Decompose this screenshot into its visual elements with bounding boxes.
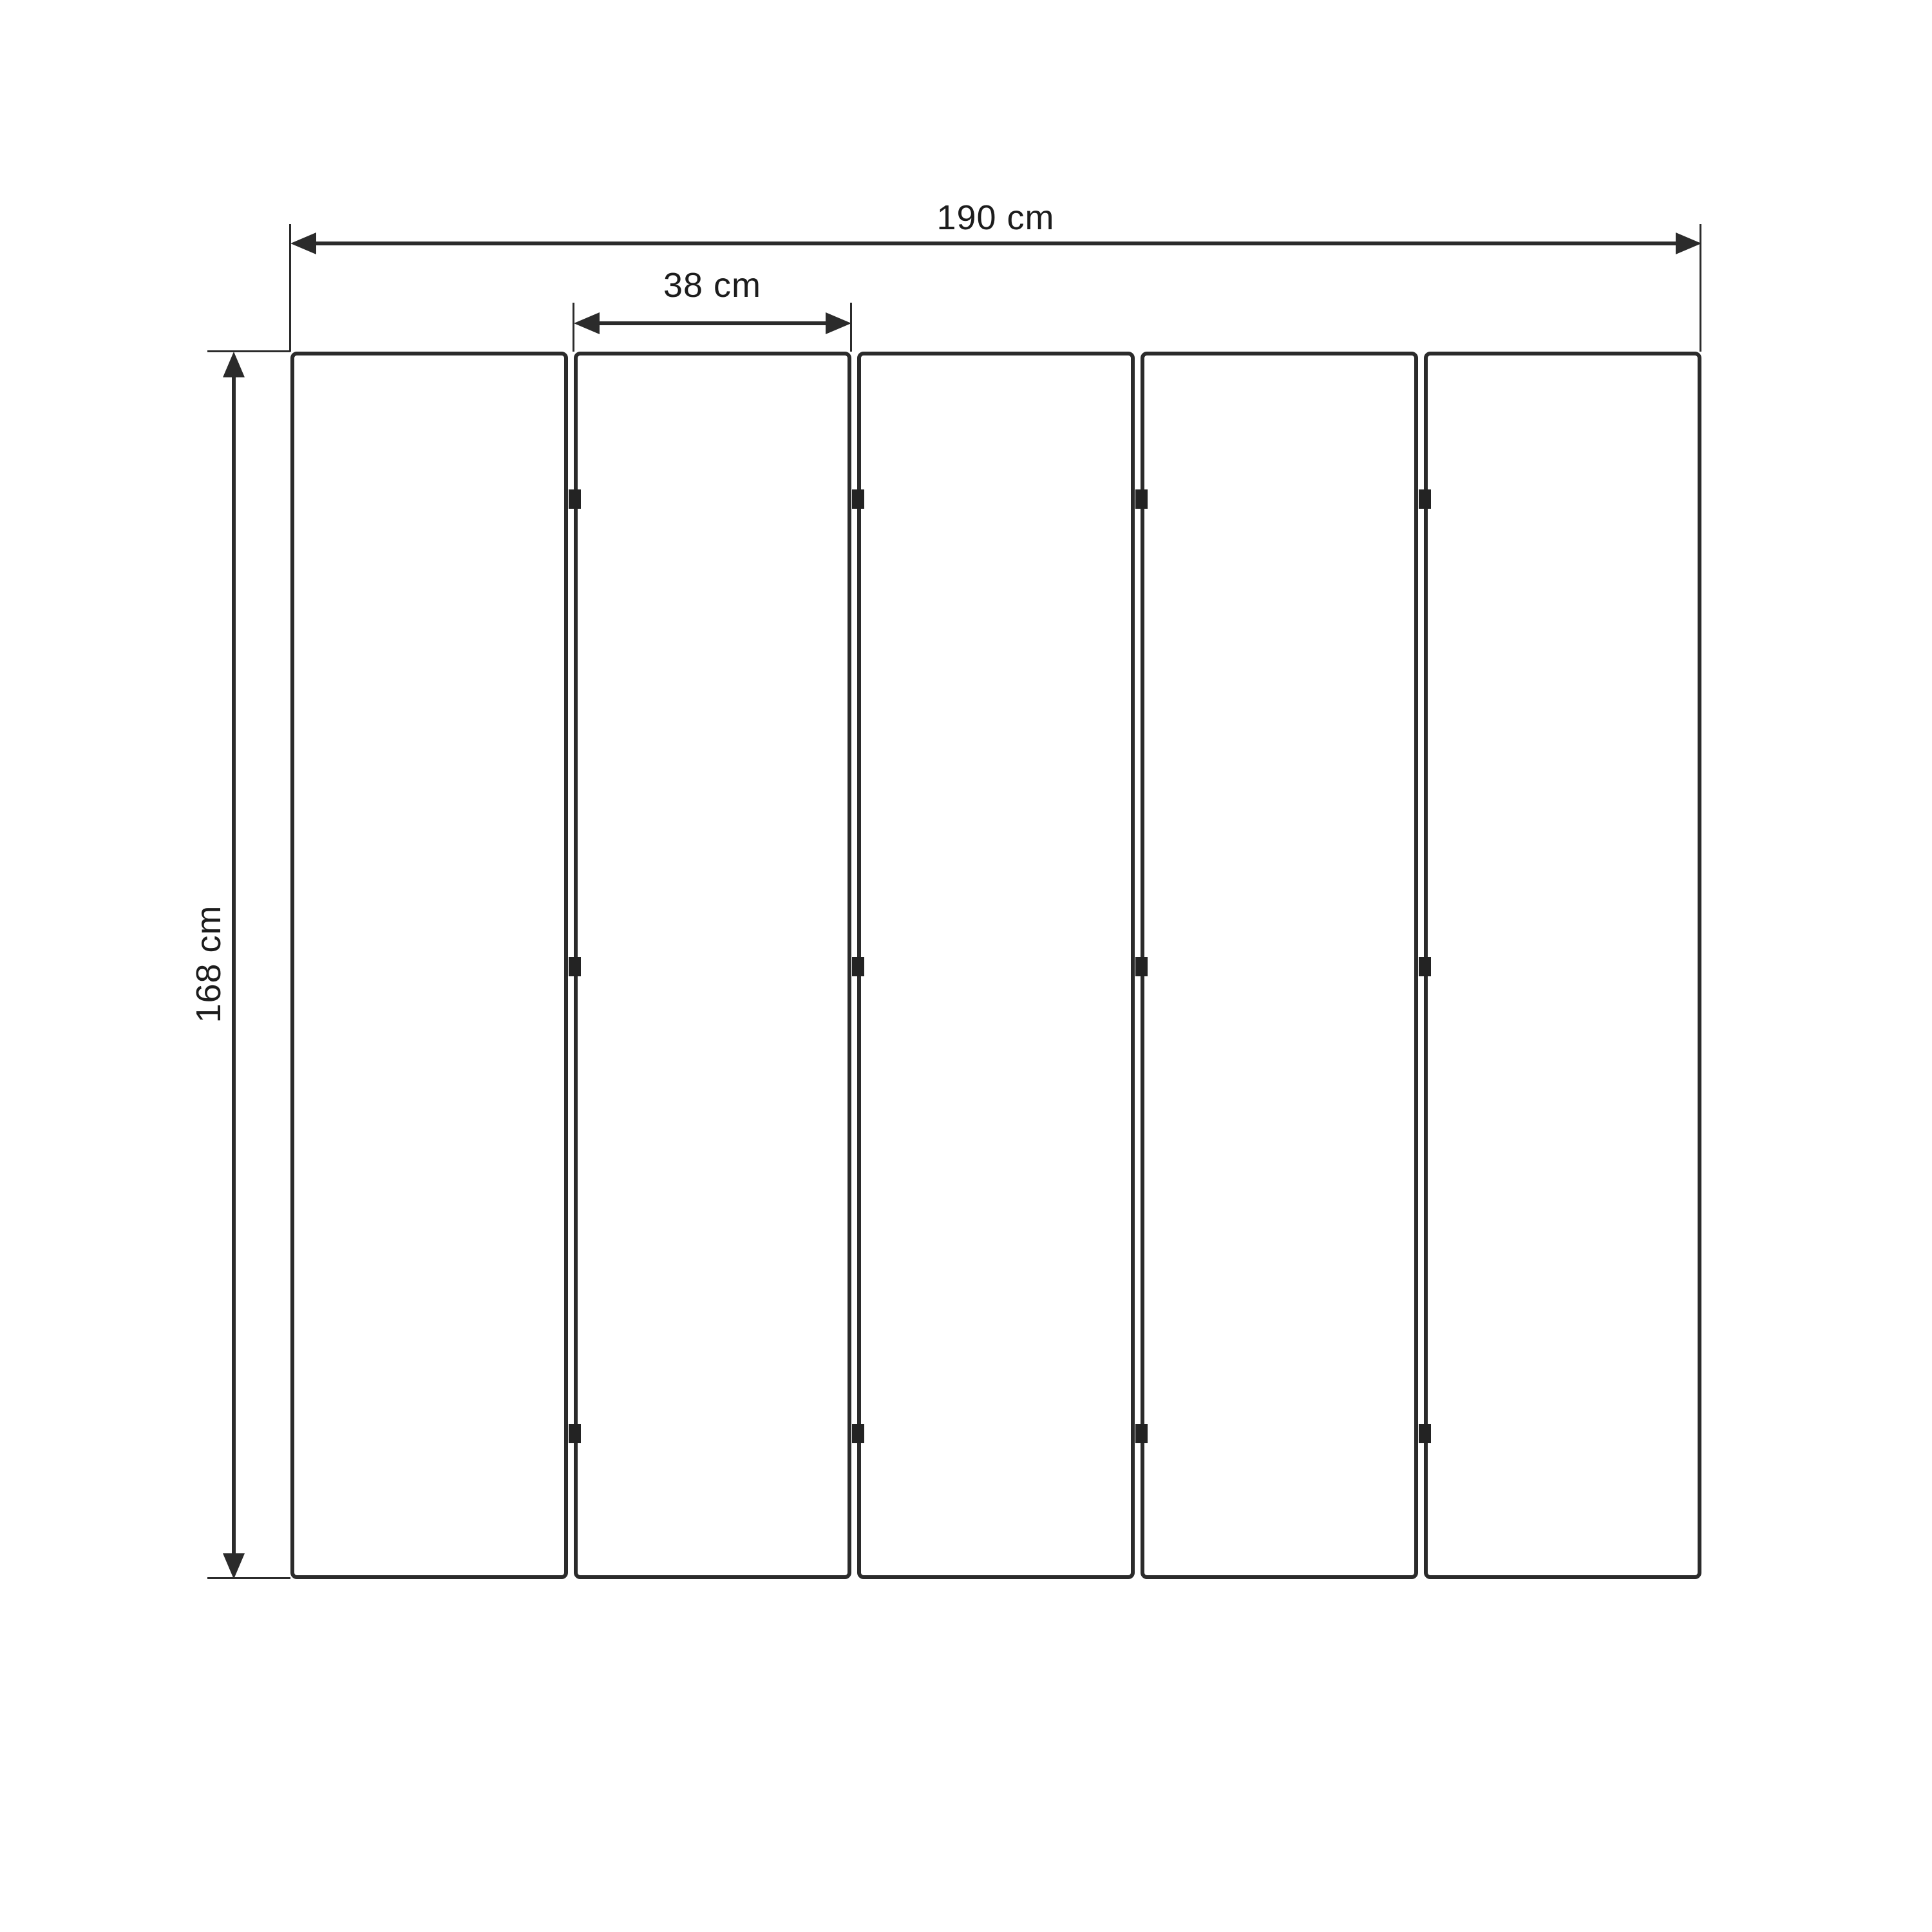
panel-hinge <box>1419 957 1431 976</box>
height-label: 168 cm <box>191 867 227 1061</box>
dimension-line <box>303 241 1689 245</box>
panel-hinge <box>569 1424 581 1443</box>
panel-hinge <box>569 489 581 509</box>
arrow-up-icon <box>223 352 245 377</box>
screen-panel-2 <box>574 352 851 1579</box>
arrow-left-icon <box>290 232 316 254</box>
panel-hinge <box>1135 1424 1148 1443</box>
panel-hinge <box>1419 1424 1431 1443</box>
dimension-line <box>586 321 839 325</box>
screen-panel-3 <box>857 352 1135 1579</box>
folding-screen-panels <box>290 352 1701 1579</box>
extension-line <box>207 350 290 352</box>
panel-width-label: 38 cm <box>616 267 809 303</box>
total-width-label: 190 cm <box>899 200 1092 236</box>
extension-line <box>207 1577 290 1579</box>
panel-hinge <box>569 957 581 976</box>
dimension-line <box>232 364 236 1567</box>
panel-hinge <box>1135 489 1148 509</box>
panel-hinge <box>852 1424 864 1443</box>
dimension-drawing-canvas: 190 cm 38 cm 168 cm <box>0 0 1932 1932</box>
panel-hinge <box>852 957 864 976</box>
panel-hinge <box>1135 957 1148 976</box>
screen-panel-1 <box>290 352 568 1579</box>
screen-panel-5 <box>1424 352 1701 1579</box>
panel-hinge <box>852 489 864 509</box>
arrow-left-icon <box>574 312 600 334</box>
arrow-right-icon <box>1676 232 1701 254</box>
panel-hinge <box>1419 489 1431 509</box>
arrow-right-icon <box>826 312 851 334</box>
arrow-down-icon <box>223 1553 245 1579</box>
screen-panel-4 <box>1141 352 1418 1579</box>
